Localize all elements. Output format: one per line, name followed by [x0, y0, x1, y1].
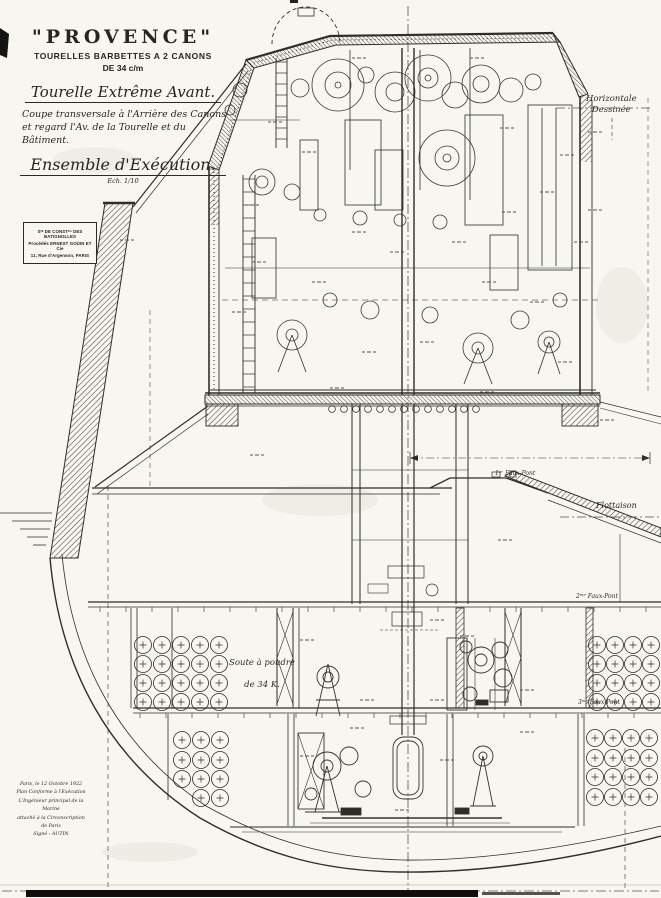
turret-group — [208, 7, 598, 395]
horizontal-ref-word-2: Dessinée — [586, 105, 637, 116]
magazine-structure — [131, 608, 660, 826]
stamp-line-3: 11, Rue d'Argenson, PARIS — [26, 253, 94, 258]
hoist-machinery — [298, 638, 512, 823]
horizontal-reference-label: Horizontale Dessinée — [586, 94, 637, 116]
rivet-lines — [214, 38, 553, 392]
turntable-rollers — [329, 406, 480, 413]
powder-magazine-label: Soute à poudre de 34 K. — [226, 652, 298, 696]
stamp-line-1: Sᵗᵉ DE CONSTᵒⁿ DES BATIGNOLLES — [26, 229, 94, 239]
maker-stamp: Sᵗᵉ DE CONSTᵒⁿ DES BATIGNOLLES Procédés … — [23, 222, 97, 264]
title-block: "PROVENCE" TOURELLES BARBETTES A 2 CANON… — [16, 26, 230, 185]
lattice-columns — [277, 608, 521, 706]
approval-block: Paris, le 12 Octobre 1922 Plan Conforme … — [16, 781, 86, 840]
blueprint-sheet: "PROVENCE" TOURELLES BARBETTES A 2 CANON… — [0, 0, 661, 898]
caliber-note: DE 34 c/m — [16, 63, 230, 73]
deck2-label: 2ᵐᵉ Faux-Pont — [576, 593, 618, 600]
drawing-subtitle: TOURELLES BARBETTES A 2 CANONS — [16, 51, 230, 61]
ship-name: "PROVENCE" — [16, 26, 230, 48]
stamp-line-2: Procédés ERNEST GOÜIN ET Cie — [26, 241, 94, 251]
deck1-label: 1ᵉʳ Faux-Pont — [495, 470, 535, 477]
magazine-label-line-2: de 34 K. — [226, 674, 298, 696]
turret-machinery-frames — [210, 48, 598, 395]
scale-note: Ech. 1/10 — [16, 177, 230, 185]
description-line-2: et regard l'Av. de la Tourelle et du Bât… — [22, 122, 230, 148]
approval-line-5: Signé : AUTIN — [16, 831, 86, 839]
description-line-1: Coupe transversale à l'Arrière des Canon… — [22, 109, 230, 122]
approval-line-4: attaché à la Circonscription de Paris — [16, 815, 86, 832]
waterline-strokes — [0, 513, 52, 545]
drawing-title: Tourelle Extrême Avant. — [25, 83, 221, 103]
magazine-label-line-1: Soute à poudre — [226, 652, 298, 674]
approval-line-2: Plan Conforme à l'Exécution — [16, 789, 86, 797]
deck3-label: 3ᵐᵉ Faux-Pont — [578, 699, 620, 706]
approval-line-3: L'Ingénieur principal de la Marine — [16, 798, 86, 815]
horizontal-ref-word-1: Horizontale — [586, 94, 637, 105]
approval-line-1: Paris, le 12 Octobre 1922 — [16, 781, 86, 789]
ladders — [243, 58, 287, 393]
deck-beam-ticks — [100, 607, 646, 718]
waterline-label: Flottaison — [596, 501, 637, 510]
deck-lines — [88, 393, 661, 832]
drawing-type: Ensemble d'Exécution. — [20, 155, 225, 176]
